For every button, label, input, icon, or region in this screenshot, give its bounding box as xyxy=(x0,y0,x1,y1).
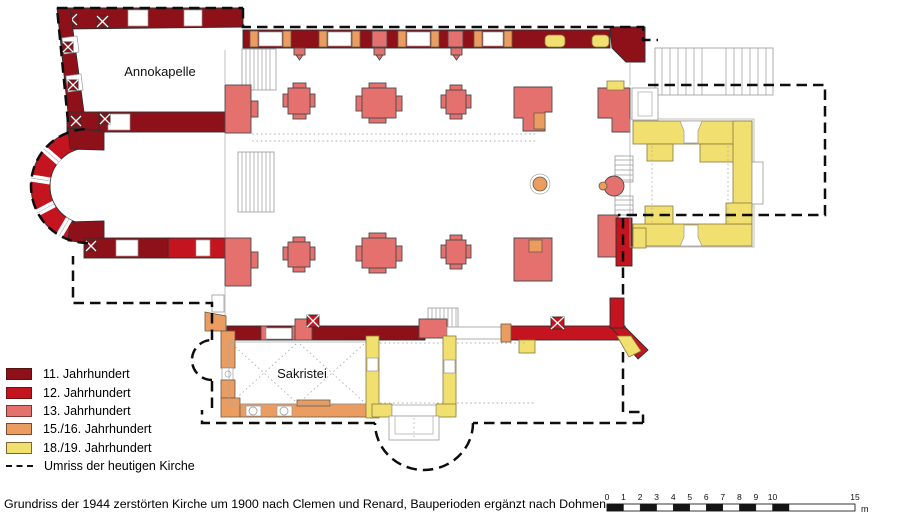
pillar xyxy=(514,238,552,281)
legend-row: 18./19. Jahrhundert xyxy=(6,439,195,457)
legend-label: 12. Jahrhundert xyxy=(43,386,131,400)
scale-bar: 0 1 2 3 4 5 6 7 8 9 10 15 m xyxy=(605,492,869,514)
room-label-annokapelle: Annokapelle xyxy=(124,64,196,79)
east-choir xyxy=(630,88,763,248)
scale-tick: 15 xyxy=(850,492,860,502)
scale-tick: 4 xyxy=(671,492,676,502)
legend-label: 15./16. Jahrhundert xyxy=(43,422,151,436)
legend-row: 15./16. Jahrhundert xyxy=(6,420,195,438)
legend-label: 11. Jahrhundert xyxy=(43,367,130,381)
west-apse xyxy=(31,128,104,243)
pillar xyxy=(283,237,315,272)
legend-swatch-1819 xyxy=(6,442,32,454)
pillar xyxy=(441,85,471,119)
pillar xyxy=(356,233,402,273)
scale-tick: 1 xyxy=(621,492,626,502)
pillar xyxy=(514,87,552,131)
legend-label: Umriss der heutigen Kirche xyxy=(44,459,195,473)
pillar xyxy=(283,83,315,119)
room-label-sakristei: Sakristei xyxy=(277,366,327,381)
scale-unit: m xyxy=(861,504,869,514)
legend-row: Umriss der heutigen Kirche xyxy=(6,457,195,475)
nave xyxy=(225,50,632,325)
scale-tick: 10 xyxy=(768,492,778,502)
scale-tick: 3 xyxy=(654,492,659,502)
scale-tick: 9 xyxy=(754,492,759,502)
legend-row: 12. Jahrhundert xyxy=(6,383,195,401)
legend-label: 18./19. Jahrhundert xyxy=(43,441,151,455)
pillar xyxy=(356,83,402,123)
floor-plan-figure: Annokapelle xyxy=(0,0,924,520)
legend-swatch-11 xyxy=(6,368,32,380)
caption: Grundriss der 1944 zerstörten Kirche um … xyxy=(4,497,606,511)
west-arm-south-wall xyxy=(84,238,228,258)
scale-tick: 2 xyxy=(638,492,643,502)
legend-dash-icon xyxy=(6,465,33,467)
legend-swatch-12 xyxy=(6,387,32,399)
east-annex-room xyxy=(372,336,535,440)
pillar xyxy=(441,235,471,269)
scale-tick: 5 xyxy=(687,492,692,502)
legend-swatch-1516 xyxy=(6,423,32,435)
scale-tick: 6 xyxy=(704,492,709,502)
north-wall xyxy=(57,8,645,62)
legend: 11. Jahrhundert 12. Jahrhundert 13. Jahr… xyxy=(6,365,195,475)
sacristy xyxy=(205,295,379,418)
scale-tick: 7 xyxy=(720,492,725,502)
staircases xyxy=(238,48,773,328)
south-wall xyxy=(227,298,648,359)
legend-row: 11. Jahrhundert xyxy=(6,365,195,383)
legend-label: 13. Jahrhundert xyxy=(43,404,131,418)
legend-row: 13. Jahrhundert xyxy=(6,402,195,420)
legend-swatch-13 xyxy=(6,405,32,417)
scale-tick: 8 xyxy=(737,492,742,502)
